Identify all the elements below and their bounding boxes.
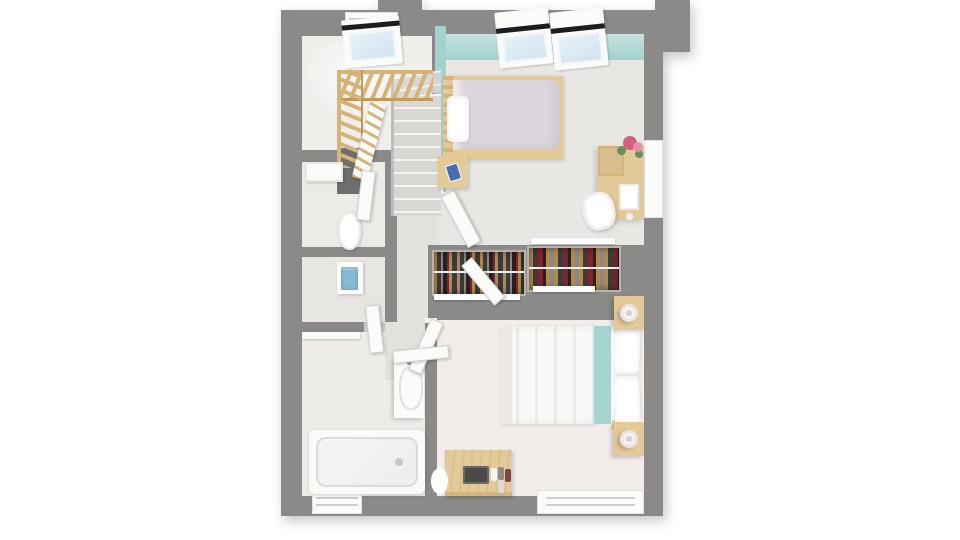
skylight-glass-2 bbox=[502, 32, 549, 63]
skylight-bedroom-left bbox=[494, 7, 554, 68]
stairs-flight bbox=[391, 94, 441, 216]
lamp-bottom bbox=[620, 430, 638, 448]
flower-vase bbox=[615, 134, 645, 160]
skylight-staircase bbox=[341, 16, 403, 69]
perfume-bottle-3 bbox=[505, 469, 511, 482]
skylight-glass bbox=[348, 29, 396, 62]
perfume-bottle-4 bbox=[498, 480, 504, 493]
single-bed bbox=[443, 76, 563, 160]
wardrobe-track-bottom-right bbox=[533, 286, 595, 292]
perfume-bottle-1 bbox=[491, 468, 497, 481]
tray bbox=[463, 466, 489, 484]
wall-wc-washroom bbox=[302, 247, 385, 257]
wall-washroom-bath bbox=[302, 322, 364, 332]
nightstand-small-bedroom bbox=[438, 156, 468, 188]
bathtub-drain bbox=[395, 458, 403, 466]
duvet-foot-fold bbox=[500, 326, 512, 424]
nightstand-master-top bbox=[614, 296, 644, 330]
outer-wall-left bbox=[281, 10, 302, 516]
roof-block-top-right bbox=[655, 0, 690, 52]
teal-runner bbox=[594, 326, 614, 424]
mouse bbox=[626, 213, 633, 220]
blue-towel bbox=[341, 267, 358, 290]
pillow-master-top bbox=[613, 324, 641, 375]
floor-plan bbox=[281, 10, 663, 516]
skylight-glass-3 bbox=[557, 32, 604, 65]
bathtub bbox=[309, 430, 425, 494]
desk-chair bbox=[580, 188, 618, 234]
cistern-shelf bbox=[305, 162, 343, 182]
perfume-bottle-2 bbox=[498, 467, 504, 480]
flower-2 bbox=[633, 142, 643, 152]
outer-wall-right bbox=[644, 10, 663, 516]
phone bbox=[445, 162, 463, 182]
pillow-master-bottom bbox=[613, 376, 641, 427]
keyboard bbox=[619, 184, 639, 210]
window-bottom-master bbox=[537, 490, 644, 514]
lamp-top bbox=[620, 304, 638, 322]
double-bed bbox=[500, 322, 641, 428]
duvet-white bbox=[500, 326, 596, 424]
nightstand-master-bottom bbox=[614, 422, 644, 456]
chair-seat bbox=[579, 189, 618, 233]
shelf-washroom bbox=[302, 332, 360, 339]
outer-wall-top bbox=[281, 10, 663, 36]
wardrobe-track-bottom-left bbox=[434, 294, 520, 300]
pillow-single bbox=[447, 96, 469, 142]
dresser bbox=[445, 450, 512, 496]
skylight-bedroom-right bbox=[549, 7, 609, 70]
stool-vase bbox=[431, 468, 448, 494]
window-right-desk bbox=[644, 140, 663, 218]
wardrobe-track-top-right bbox=[531, 238, 615, 244]
